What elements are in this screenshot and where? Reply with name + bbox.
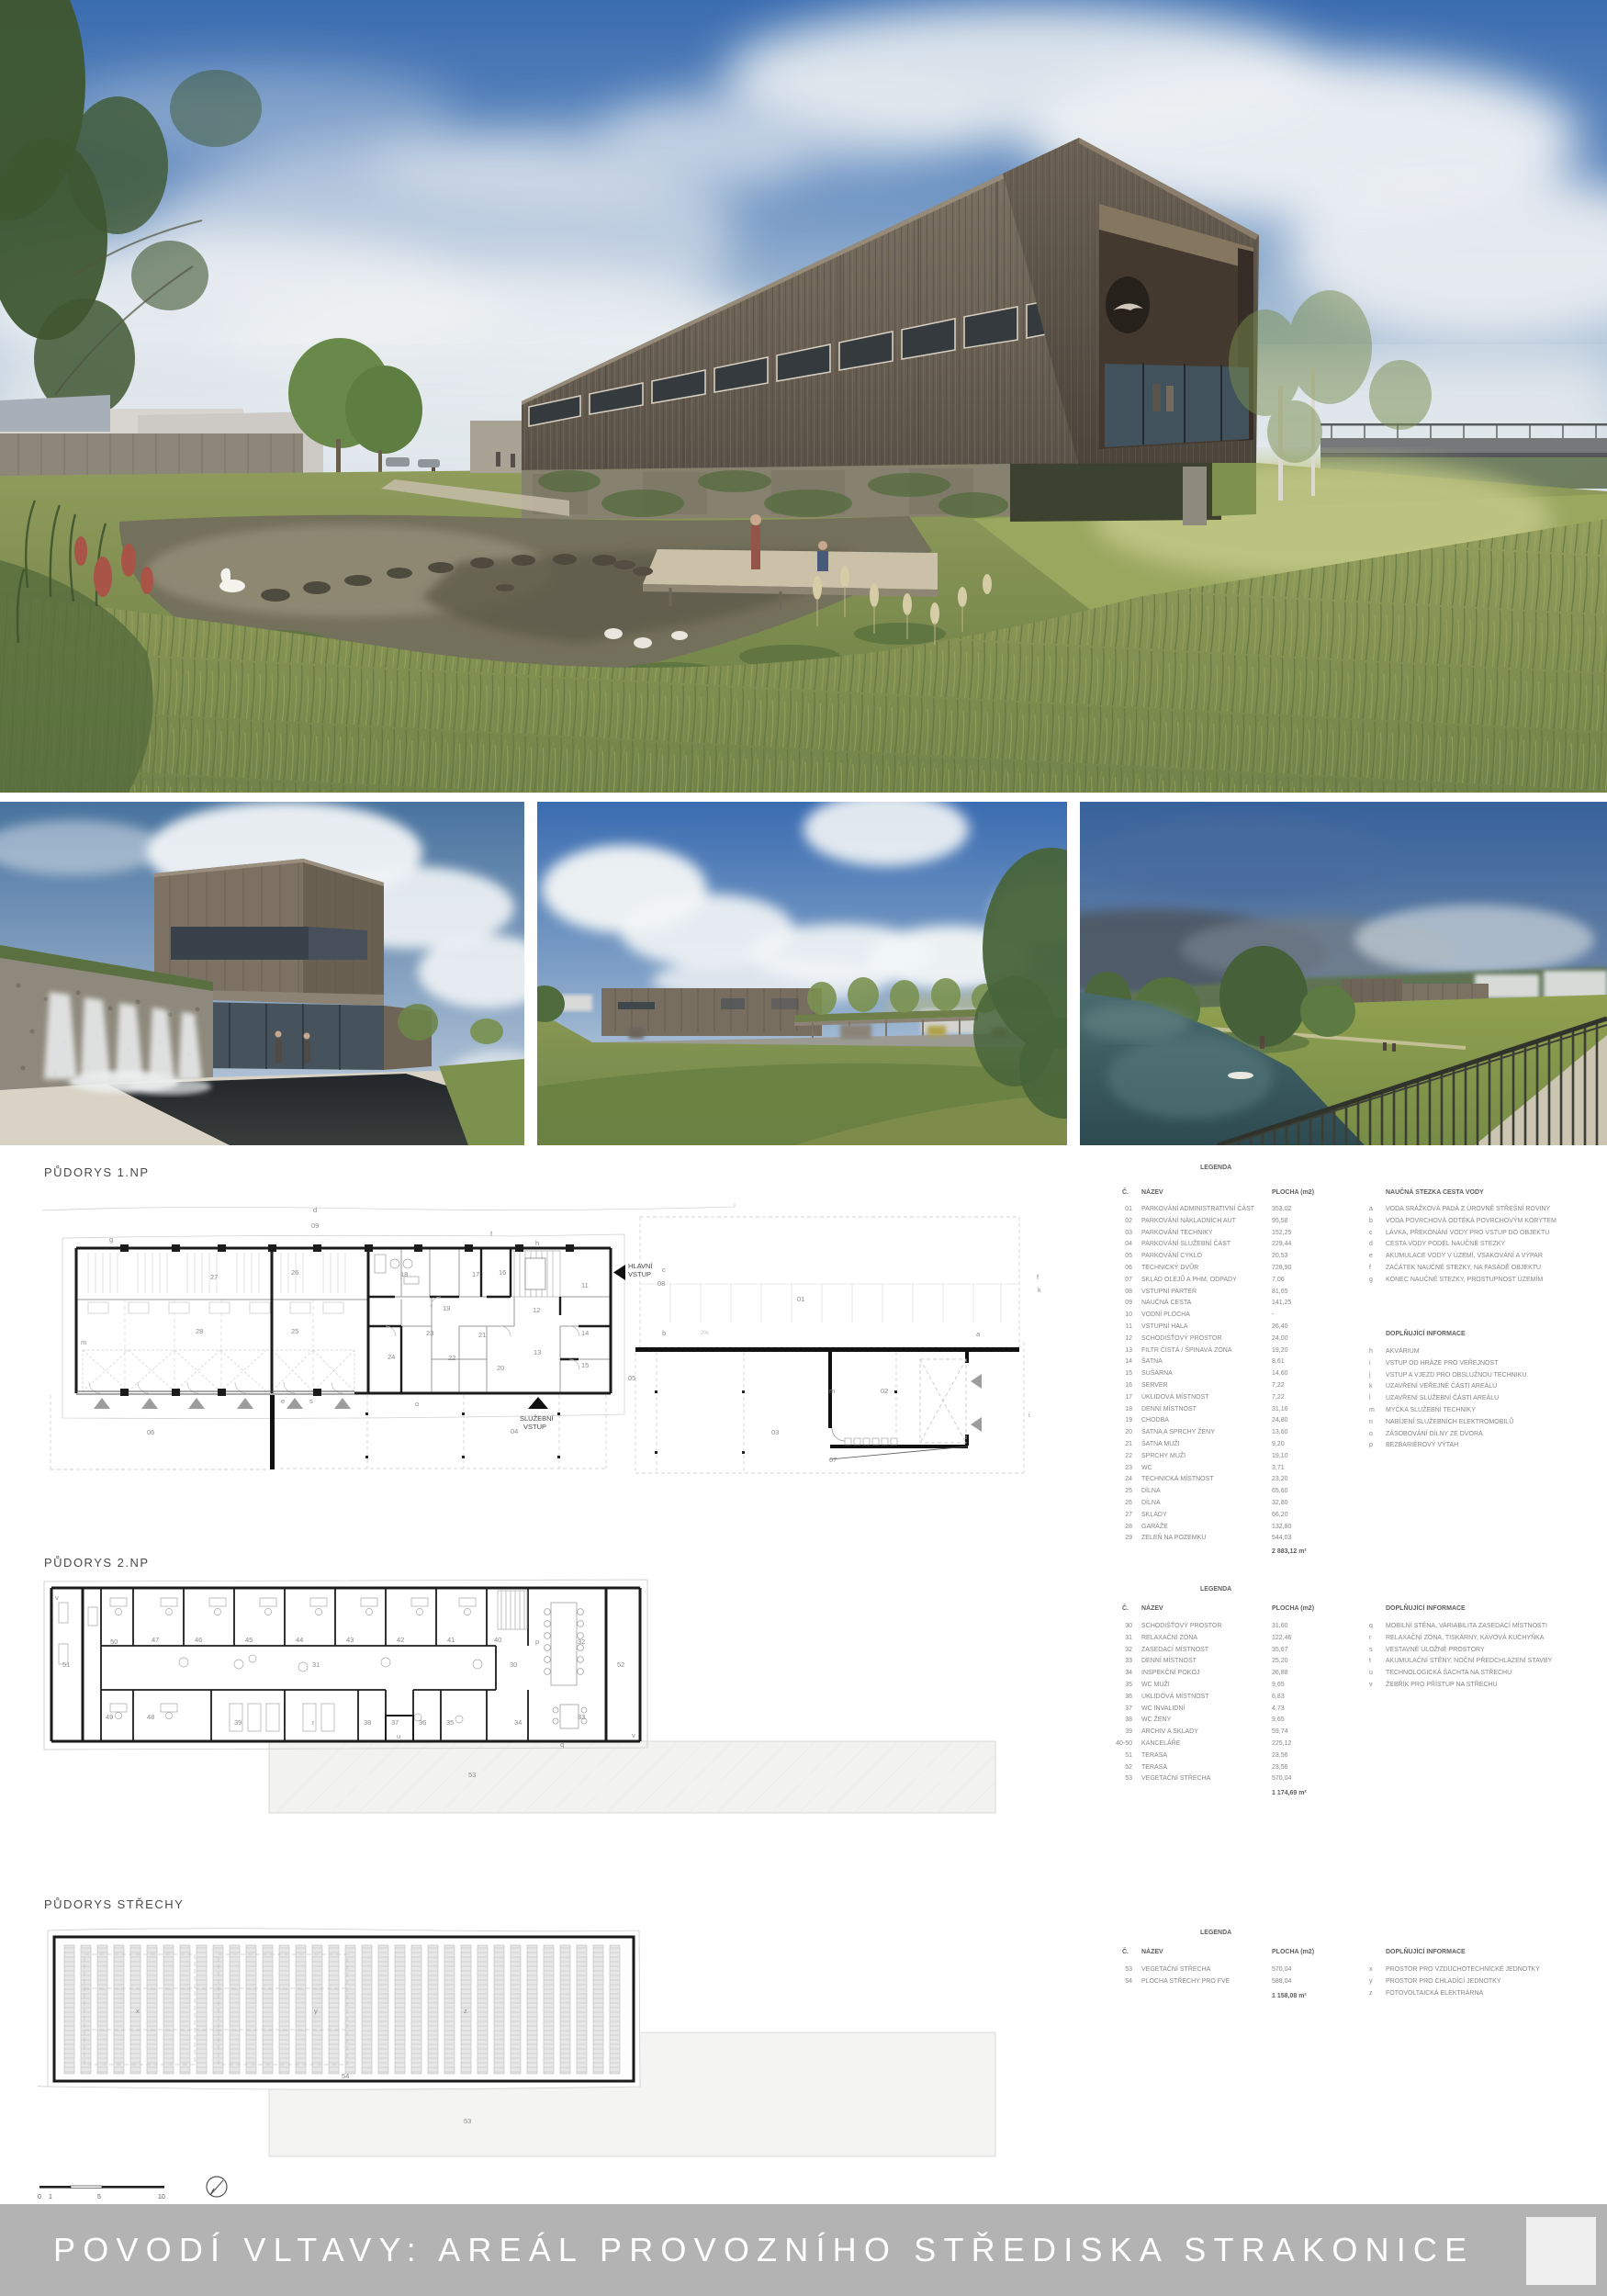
svg-text:d: d — [313, 1206, 317, 1214]
svg-text:x: x — [136, 2007, 140, 2015]
svg-text:v: v — [632, 1731, 635, 1739]
svg-text:q: q — [560, 1740, 564, 1749]
svg-text:47: 47 — [152, 1636, 159, 1644]
svg-text:03: 03 — [771, 1428, 779, 1436]
svg-text:23: 23 — [426, 1329, 433, 1337]
svg-text:38: 38 — [364, 1718, 371, 1727]
svg-text:g: g — [109, 1235, 113, 1244]
svg-text:p: p — [535, 1638, 539, 1646]
svg-text:b: b — [662, 1329, 666, 1337]
svg-text:a: a — [976, 1330, 981, 1338]
svg-text:HLAVNÍ: HLAVNÍ — [628, 1262, 653, 1270]
svg-text:z: z — [464, 2007, 467, 2015]
svg-text:51: 51 — [62, 1660, 70, 1669]
svg-text:53: 53 — [464, 2117, 471, 2125]
svg-text:02: 02 — [881, 1387, 888, 1395]
svg-text:25: 25 — [291, 1327, 298, 1335]
svg-text:f: f — [1037, 1273, 1039, 1281]
svg-text:39: 39 — [234, 1718, 242, 1727]
svg-text:i: i — [1028, 1411, 1030, 1419]
svg-text:s: s — [309, 1397, 313, 1405]
svg-text:o: o — [415, 1400, 419, 1408]
svg-text:m: m — [81, 1338, 86, 1346]
svg-text:22: 22 — [448, 1354, 455, 1362]
svg-text:24: 24 — [388, 1353, 395, 1361]
svg-text:k: k — [1038, 1286, 1041, 1294]
svg-text:05: 05 — [628, 1374, 635, 1382]
svg-text:17: 17 — [472, 1270, 479, 1278]
svg-text:18: 18 — [400, 1270, 408, 1278]
svg-text:19: 19 — [443, 1304, 450, 1312]
svg-text:43: 43 — [346, 1636, 354, 1644]
svg-text:37: 37 — [391, 1718, 399, 1727]
svg-text:09: 09 — [311, 1221, 319, 1230]
svg-text:16: 16 — [499, 1268, 506, 1277]
svg-text:VSTUP: VSTUP — [628, 1270, 651, 1278]
svg-text:VSTUP: VSTUP — [523, 1423, 546, 1431]
svg-text:48: 48 — [147, 1713, 154, 1721]
svg-text:c: c — [662, 1266, 666, 1274]
svg-text:20: 20 — [497, 1364, 504, 1372]
svg-text:33: 33 — [578, 1713, 585, 1721]
svg-text:34: 34 — [514, 1718, 522, 1727]
svg-text:0: 0 — [38, 2194, 41, 2200]
svg-text:12: 12 — [533, 1306, 540, 1314]
svg-text:44: 44 — [296, 1636, 303, 1644]
svg-text:15: 15 — [581, 1361, 589, 1369]
svg-text:35: 35 — [446, 1718, 454, 1727]
svg-text:5: 5 — [97, 2194, 101, 2200]
svg-text:21: 21 — [478, 1331, 486, 1339]
svg-text:52: 52 — [617, 1660, 624, 1669]
svg-text:1: 1 — [49, 2194, 52, 2200]
svg-text:01: 01 — [797, 1295, 804, 1303]
svg-text:27: 27 — [210, 1273, 218, 1281]
svg-text:45: 45 — [245, 1636, 253, 1644]
svg-text:36: 36 — [419, 1718, 426, 1727]
svg-text:06: 06 — [147, 1428, 154, 1436]
svg-text:07: 07 — [829, 1456, 837, 1464]
svg-text:54: 54 — [342, 2072, 349, 2080]
svg-text:14: 14 — [581, 1329, 589, 1337]
svg-text:08: 08 — [657, 1279, 665, 1288]
svg-text:42: 42 — [397, 1636, 404, 1644]
svg-text:r: r — [312, 1718, 315, 1727]
svg-text:10: 10 — [158, 2194, 165, 2200]
svg-text:13: 13 — [534, 1348, 541, 1356]
svg-text:u: u — [397, 1732, 400, 1740]
svg-text:SLUŽEBNÍ: SLUŽEBNÍ — [520, 1414, 555, 1423]
svg-text:49: 49 — [106, 1713, 113, 1721]
svg-text:m: m — [829, 1387, 835, 1395]
svg-text:50: 50 — [110, 1638, 118, 1646]
svg-text:11: 11 — [581, 1281, 589, 1289]
svg-text:2%: 2% — [701, 1331, 709, 1336]
svg-text:f: f — [490, 1230, 493, 1238]
svg-text:32: 32 — [578, 1638, 585, 1646]
svg-text:26: 26 — [291, 1268, 298, 1277]
svg-text:40: 40 — [494, 1636, 501, 1644]
svg-text:e: e — [281, 1397, 285, 1405]
svg-text:28: 28 — [196, 1327, 203, 1335]
svg-text:h: h — [535, 1239, 539, 1247]
svg-text:04: 04 — [511, 1427, 518, 1435]
svg-text:46: 46 — [195, 1636, 202, 1644]
svg-text:31: 31 — [312, 1660, 320, 1669]
svg-text:41: 41 — [447, 1636, 455, 1644]
svg-text:30: 30 — [510, 1660, 517, 1669]
svg-text:53: 53 — [468, 1771, 476, 1779]
svg-text:v: v — [55, 1593, 59, 1602]
svg-text:y: y — [314, 2007, 318, 2015]
